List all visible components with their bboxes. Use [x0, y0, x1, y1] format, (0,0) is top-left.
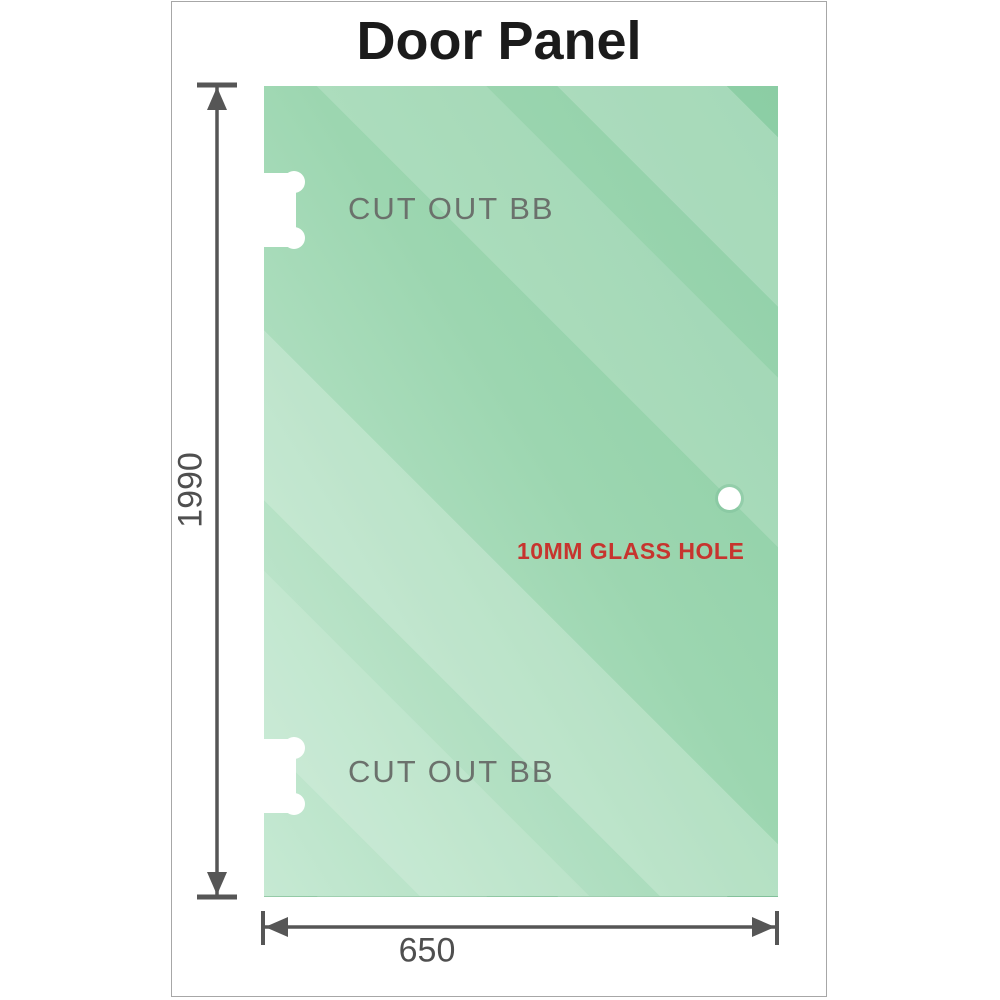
- hinge-cutout-top-icon: [258, 169, 308, 251]
- glass-hole-label: 10MM GLASS HOLE: [517, 538, 744, 565]
- height-dimension-label: 1990: [172, 452, 211, 528]
- width-dimension-arrow-icon: [255, 909, 785, 947]
- glass-hole-icon: [718, 487, 741, 510]
- door-panel-diagram: Door Panel CUT OUT BB CUT OUT BB 10MM GL…: [0, 0, 1000, 1000]
- cutout-bottom-label: CUT OUT BB: [348, 754, 555, 790]
- page-title: Door Panel: [171, 10, 827, 72]
- hinge-cutout-bottom-icon: [258, 735, 308, 817]
- width-dimension-label: 650: [399, 932, 456, 971]
- cutout-top-label: CUT OUT BB: [348, 191, 555, 227]
